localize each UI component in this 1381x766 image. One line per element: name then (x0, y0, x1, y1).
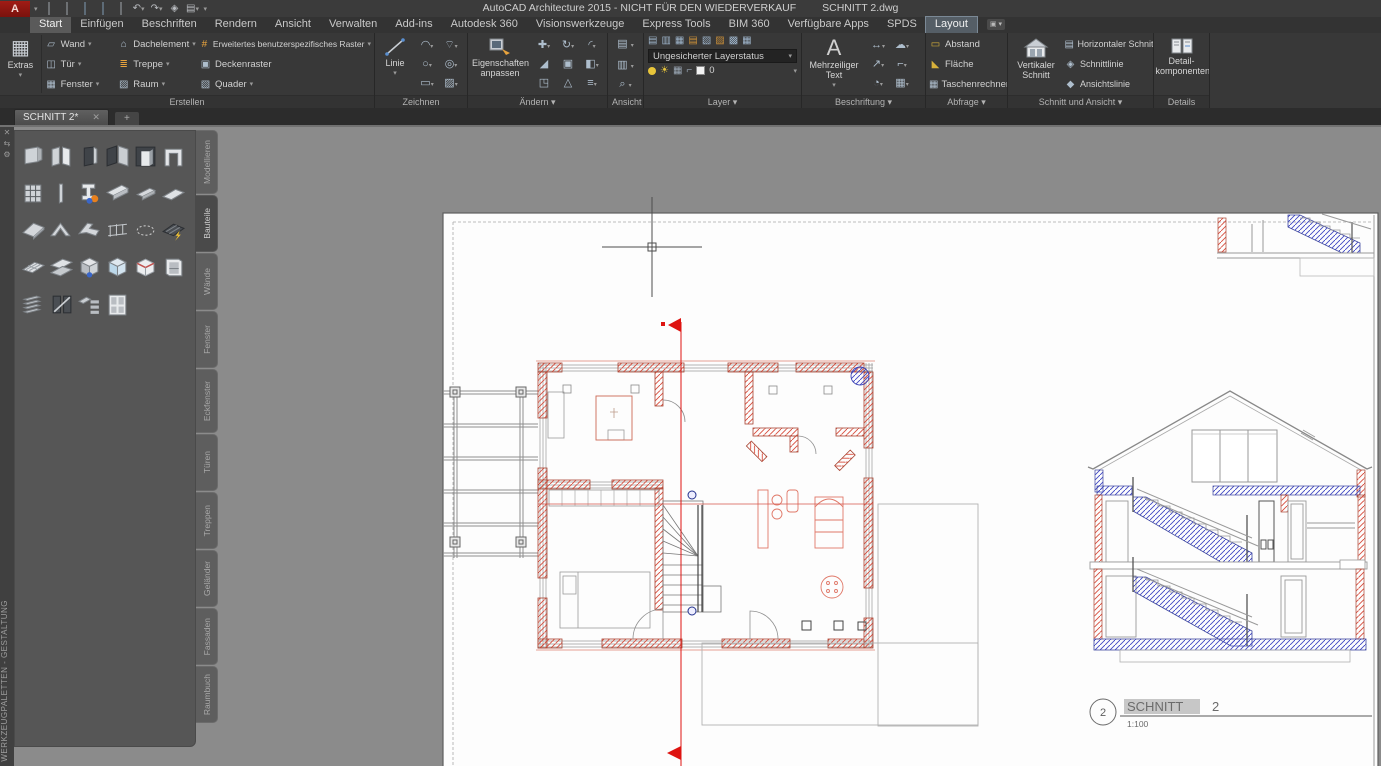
ribbon: ▦ Extras▾ ▱Wand▾ ◫Tür▾ ▦Fenster▾ ⌂Dachel… (0, 33, 1381, 108)
layer-color-icon[interactable]: ▦ (673, 65, 682, 76)
palette-properties-icon[interactable]: ⚙ (0, 149, 14, 160)
callout-scale: 1:100 (1127, 719, 1149, 729)
panel-details: Detail-komponenten Details (1154, 33, 1210, 108)
extras-icon: ▦ (11, 37, 30, 59)
layer-thaw-icon[interactable]: ☀ (660, 65, 669, 76)
palette-autohide-icon[interactable]: ⇆ (0, 138, 14, 149)
callout-title[interactable]: SCHNITT (1127, 699, 1183, 714)
schnittlinie-button[interactable]: ◈Schnittlinie (1064, 57, 1153, 71)
mtext-button[interactable]: A Mehrzeiliger Text▾ (805, 35, 863, 93)
palette-tool-roof-bend[interactable] (75, 215, 103, 245)
tab-visionswerkzeuge[interactable]: Visionswerkzeuge (527, 17, 633, 33)
layer-tool-icon[interactable]: ▤ (648, 35, 657, 46)
detail-components-icon (1170, 37, 1194, 55)
palette-tool-louvres[interactable] (19, 289, 47, 319)
extras-button[interactable]: ▦ Extras▾ (3, 35, 38, 93)
callout-seq: 2 (1212, 699, 1219, 714)
callout-number: 2 (1100, 707, 1106, 719)
tab-bim360[interactable]: BIM 360 (720, 17, 779, 33)
clock-tool-icon[interactable]: ◔▾ (866, 77, 890, 89)
line-icon (384, 37, 406, 57)
tab-beschriften[interactable]: Beschriften (133, 17, 206, 33)
panel-label-ansicht: Ansicht (608, 95, 643, 108)
flaeche-button[interactable]: ◣Fläche (929, 57, 1004, 71)
layer-tool-icon[interactable]: ▤ (688, 35, 697, 46)
palette-tool-diagonal-panel[interactable] (47, 289, 75, 319)
panel-zeichnen: Linie▾ ◠▾ ⌔▾ ○▾ ◎▾ ▭▾ ▨▾ Zeichnen (375, 33, 468, 108)
palette-tool-railing[interactable] (103, 215, 131, 245)
tuer-button[interactable]: ◫Tür▾ (45, 57, 115, 71)
palette-tool-window-grid[interactable] (19, 178, 47, 208)
palette-tab-fenster[interactable]: Fenster (196, 311, 218, 368)
palette-tool-grid (15, 131, 195, 333)
panel-erstellen: ▦ Extras▾ ▱Wand▾ ◫Tür▾ ▦Fenster▾ ⌂Dachel… (0, 33, 375, 108)
layer-tool-icon[interactable]: ▦ (742, 35, 751, 46)
palette-tool-roof-gable[interactable] (47, 215, 75, 245)
layer-tool-icon[interactable]: ▩ (729, 35, 738, 46)
raster-button[interactable]: #Erweitertes benutzerspezifisches Raster… (199, 37, 371, 51)
palette-tool-mesh-slab[interactable] (19, 252, 47, 282)
copy-tool-icon[interactable]: ▣ (556, 57, 580, 70)
palette-tab-eckfenster[interactable]: Eckfenster (196, 369, 218, 433)
palette-tool-beam-short[interactable] (131, 178, 159, 208)
panel-label-schnitt[interactable]: Schnitt und Ansicht ▾ (1008, 95, 1153, 108)
palette-tab-waende[interactable]: Wände (196, 253, 218, 310)
layer-unlock-icon[interactable]: ⌐ (686, 65, 692, 76)
panel-abfrage: ▭Abstand ◣Fläche ▦Taschenrechner Abfrage… (926, 33, 1008, 108)
panel-label-erstellen: Erstellen (0, 95, 374, 108)
layer-current-row[interactable]: ☀ ▦ ⌐ 0 ▾ (646, 65, 799, 76)
palette-tool-ibeam-convert[interactable] (75, 178, 103, 208)
new-drawing-tab-button[interactable]: + (115, 112, 139, 125)
layer-tool-icon[interactable]: ▧ (702, 35, 711, 46)
tab-ansicht[interactable]: Ansicht (266, 17, 320, 33)
palette-tool-slab-tilted[interactable] (19, 215, 47, 245)
tag-tool-icon[interactable]: ⌐▾ (890, 58, 914, 70)
title-bar: A ▾ ↶▾ ↷▾ ◈ ▤▾ ▾ AutoCAD Architecture 20… (0, 0, 1381, 17)
palette-tool-dark-panel[interactable] (75, 141, 103, 171)
palette-tab-raumbuch[interactable]: Raumbuch (196, 666, 218, 723)
taschenrechner-button[interactable]: ▦Taschenrechner (929, 77, 1004, 91)
panel-label-layer[interactable]: Layer ▾ (644, 95, 801, 108)
circle-tool-icon[interactable]: ○▾ (415, 58, 439, 70)
palette-title: WERKZEUGPALETTEN - GESTALTUNG (0, 600, 14, 762)
abstand-button[interactable]: ▭Abstand (929, 37, 1004, 51)
erase-tool-icon[interactable]: ◢ (532, 57, 556, 70)
tab-addins[interactable]: Add-ins (386, 17, 441, 33)
panel-beschriftung: A Mehrzeiliger Text▾ ↔▾ ☁▾ ↗▾ ⌐▾ ◔▾ ▦▾ B… (802, 33, 926, 108)
dachelement-button[interactable]: ⌂Dachelement▾ (117, 37, 196, 51)
leader-tool-icon[interactable]: ↗▾ (866, 57, 890, 70)
fenster-button[interactable]: ▦Fenster▾ (45, 77, 115, 91)
tab-start[interactable]: Start (30, 17, 71, 33)
palette-tool-panel-door[interactable] (103, 289, 131, 319)
treppe-button[interactable]: ≣Treppe▾ (117, 57, 196, 71)
view-cube-icon[interactable]: ▤ ▾ (617, 37, 633, 50)
arc-tool-icon[interactable]: ◠▾ (415, 38, 439, 51)
layer-on-icon[interactable] (648, 67, 656, 75)
raum-button[interactable]: ▨Raum▾ (117, 77, 196, 91)
palette-tool-dark-door-frame[interactable] (131, 141, 159, 171)
quader-button[interactable]: ▧Quader▾ (199, 77, 371, 91)
tab-expresstools[interactable]: Express Tools (633, 17, 719, 33)
layer-swatch (696, 66, 705, 75)
linie-button[interactable]: Linie▾ (378, 35, 412, 93)
panel-label-zeichnen: Zeichnen (375, 95, 467, 108)
palette-tool-stack-bars[interactable] (75, 289, 103, 319)
palette-tool-grid-bolt[interactable] (159, 215, 187, 245)
palette-tool-beam-long[interactable] (103, 178, 131, 208)
rectangle-tool-icon[interactable]: ▭▾ (415, 76, 439, 89)
panel-aendern: Eigenschaften anpassen ✚▾ ↻▾ ◜▾ ◢ ▣ ◧▾ ◳… (468, 33, 608, 108)
vertikaler-schnitt-button[interactable]: Vertikaler Schnitt (1011, 35, 1061, 93)
palette-tool-door-opening[interactable] (159, 141, 187, 171)
palette-tool-thin-panel[interactable] (47, 178, 75, 208)
array-tool-icon[interactable]: ≡▾ (580, 77, 604, 89)
layer-tool-icon[interactable]: ▨ (715, 35, 724, 46)
deckenraster-button[interactable]: ▣Deckenraster (199, 57, 371, 71)
match-properties-icon (488, 37, 512, 57)
palette-tab-treppen[interactable]: Treppen (196, 492, 218, 549)
panel-label-aendern[interactable]: Ändern ▾ (468, 95, 607, 108)
palette-tool-open-double-panel[interactable] (103, 141, 131, 171)
palette-tab-column: Modellieren Bauteile Wände Fenster Eckfe… (196, 130, 218, 724)
tool-palette (14, 130, 196, 747)
tab-verfuegbare-apps[interactable]: Verfügbare Apps (779, 17, 878, 33)
palette-tab-bauteile[interactable]: Bauteile (196, 195, 218, 252)
layer-state-dropdown[interactable]: Ungesicherter Layerstatus▾ (648, 49, 797, 63)
layer-tool-icon[interactable]: ▥ (661, 35, 670, 46)
panel-label-beschriftung[interactable]: Beschriftung ▾ (802, 95, 925, 108)
detailkomponenten-button[interactable]: Detail-komponenten (1156, 35, 1208, 93)
mtext-icon: A (827, 37, 842, 59)
file-tab-schnitt2[interactable]: SCHNITT 2* ✕ (14, 109, 109, 125)
polyline-tool-icon[interactable]: ⌔▾ (439, 38, 463, 52)
tab-verwalten[interactable]: Verwalten (320, 17, 386, 33)
palette-tool-glass-box[interactable] (103, 252, 131, 282)
palette-title-strip[interactable]: ✕ ⇆ ⚙ WERKZEUGPALETTEN - GESTALTUNG (0, 127, 14, 766)
panel-label-abfrage[interactable]: Abfrage ▾ (926, 95, 1007, 108)
rotate-tool-icon[interactable]: ↻▾ (556, 38, 580, 51)
layer-tools-row: ▤ ▥ ▦ ▤ ▧ ▨ ▩ ▦ (646, 34, 799, 47)
ribbon-display-toggle[interactable]: ▣ ▾ (987, 19, 1005, 30)
drawing-canvas[interactable]: 2 SCHNITT 2 1:100 ✕ (0, 125, 1381, 766)
view-zoom-icon[interactable]: ⌕ ▾ (619, 78, 631, 91)
tab-einfuegen[interactable]: Einfügen (71, 17, 132, 33)
palette-tab-fassaden[interactable]: Fassaden (196, 608, 218, 665)
hatch-tool-icon[interactable]: ▨▾ (439, 76, 463, 89)
close-tab-icon[interactable]: ✕ (92, 112, 100, 123)
palette-tool-cube[interactable] (75, 252, 103, 282)
layer-tool-icon[interactable]: ▦ (675, 35, 684, 46)
table-tool-icon[interactable]: ▦▾ (890, 76, 914, 89)
palette-tool-red-edge-box[interactable] (131, 252, 159, 282)
offset-tool-icon[interactable]: ◳ (532, 76, 556, 89)
ansichtslinie-button[interactable]: ◆Ansichtslinie (1064, 77, 1153, 91)
palette-tool-wall-panel[interactable] (19, 141, 47, 171)
tab-rendern[interactable]: Rendern (206, 17, 266, 33)
autocad-window: A ▾ ↶▾ ↷▾ ◈ ▤▾ ▾ AutoCAD Architecture 20… (0, 0, 1381, 766)
tab-autodesk360[interactable]: Autodesk 360 (442, 17, 527, 33)
ellipse-tool-icon[interactable]: ◎▾ (439, 57, 463, 70)
mirror-tool-icon[interactable]: ◧▾ (580, 57, 604, 70)
palette-close-icon[interactable]: ✕ (0, 127, 14, 138)
tab-layout[interactable]: Layout (926, 17, 977, 33)
palette-tab-tueren[interactable]: Türen (196, 434, 218, 491)
move-tool-icon[interactable]: ✚▾ (532, 38, 556, 51)
panel-layer: ▤ ▥ ▦ ▤ ▧ ▨ ▩ ▦ Ungesicherter Layerstatu… (644, 33, 802, 108)
window-title: AutoCAD Architecture 2015 - NICHT FÜR DE… (0, 2, 1381, 14)
palette-tool-flat-slab[interactable] (159, 178, 187, 208)
ribbon-tab-bar: Start Einfügen Beschriften Rendern Ansic… (0, 17, 1381, 33)
tab-spds[interactable]: SPDS (878, 17, 926, 33)
cloud-tool-icon[interactable]: ☁▾ (890, 38, 914, 51)
file-tab-bar: SCHNITT 2* ✕ + (0, 108, 1381, 125)
fillet-tool-icon[interactable]: ◜▾ (580, 38, 604, 51)
palette-tab-modellieren[interactable]: Modellieren (196, 130, 218, 194)
palette-tool-cabinet[interactable] (159, 252, 187, 282)
panel-schnitt-ansicht: Vertikaler Schnitt ▤Horizontaler Schnitt… (1008, 33, 1154, 108)
dimension-tool-icon[interactable]: ↔▾ (866, 39, 890, 51)
palette-tool-double-door[interactable] (47, 141, 75, 171)
eigenschaften-anpassen-button[interactable]: Eigenschaften anpassen (471, 35, 529, 93)
view-layers-icon[interactable]: ▥ ▾ (617, 58, 633, 71)
wand-button[interactable]: ▱Wand▾ (45, 37, 115, 51)
palette-tool-two-slabs[interactable] (47, 252, 75, 282)
palette-tab-gelaender[interactable]: Geländer (196, 550, 218, 607)
panel-label-details: Details (1154, 95, 1209, 108)
house-section-icon (1023, 37, 1049, 59)
horizontaler-schnitt-button[interactable]: ▤Horizontaler Schnitt (1064, 37, 1153, 51)
trim-tool-icon[interactable]: △ (556, 76, 580, 89)
panel-ansicht: ▤ ▾ ▥ ▾ ⌕ ▾ Ansicht (608, 33, 644, 108)
palette-tool-dashed-grid[interactable] (131, 215, 159, 245)
